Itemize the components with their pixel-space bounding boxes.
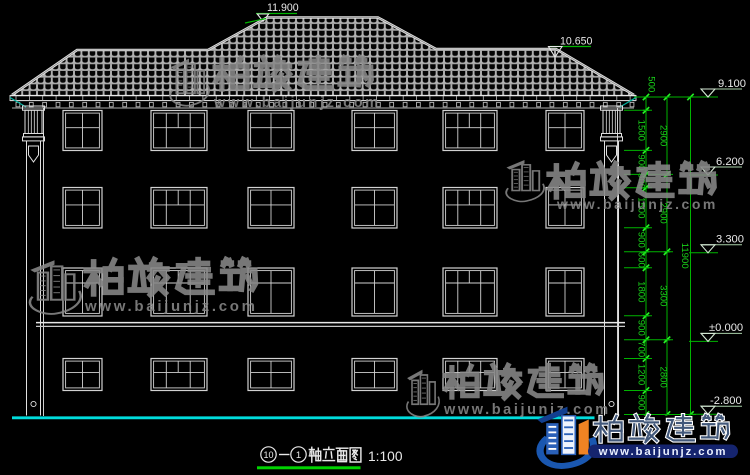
svg-text:10.650: 10.650 [560,36,593,48]
svg-text:900: 900 [636,394,647,410]
svg-text:1500: 1500 [636,120,647,141]
svg-text:www.baijunjz.com: www.baijunjz.com [598,446,728,458]
svg-text:±0.000: ±0.000 [709,322,743,334]
svg-text:1: 1 [296,450,301,461]
svg-text:www.baijunjz.com: www.baijunjz.com [443,402,611,418]
svg-text:6.200: 6.200 [716,156,744,168]
svg-text:700: 700 [636,341,647,357]
svg-text:www.baijunjz.com: www.baijunjz.com [556,196,718,212]
svg-text:11.900: 11.900 [267,2,299,14]
svg-text:900: 900 [636,232,647,248]
svg-text:www.baijunjz.com: www.baijunjz.com [84,298,258,315]
svg-text:600: 600 [636,252,647,268]
svg-text:10: 10 [263,450,273,460]
svg-text:2900: 2900 [658,125,669,146]
svg-text:11900: 11900 [679,243,690,269]
svg-text:3.300: 3.300 [716,234,744,246]
svg-text:www.baijunjz.com: www.baijunjz.com [213,95,381,111]
svg-text:-2.800: -2.800 [710,395,742,407]
svg-text:9.100: 9.100 [718,78,746,90]
svg-text:500: 500 [646,76,657,92]
svg-text:1800: 1800 [636,281,647,302]
svg-text:3300: 3300 [658,285,669,306]
svg-text:900: 900 [636,320,647,336]
svg-text:2800: 2800 [658,366,669,387]
svg-text:1200: 1200 [636,364,647,385]
svg-text:1:100: 1:100 [368,449,403,464]
